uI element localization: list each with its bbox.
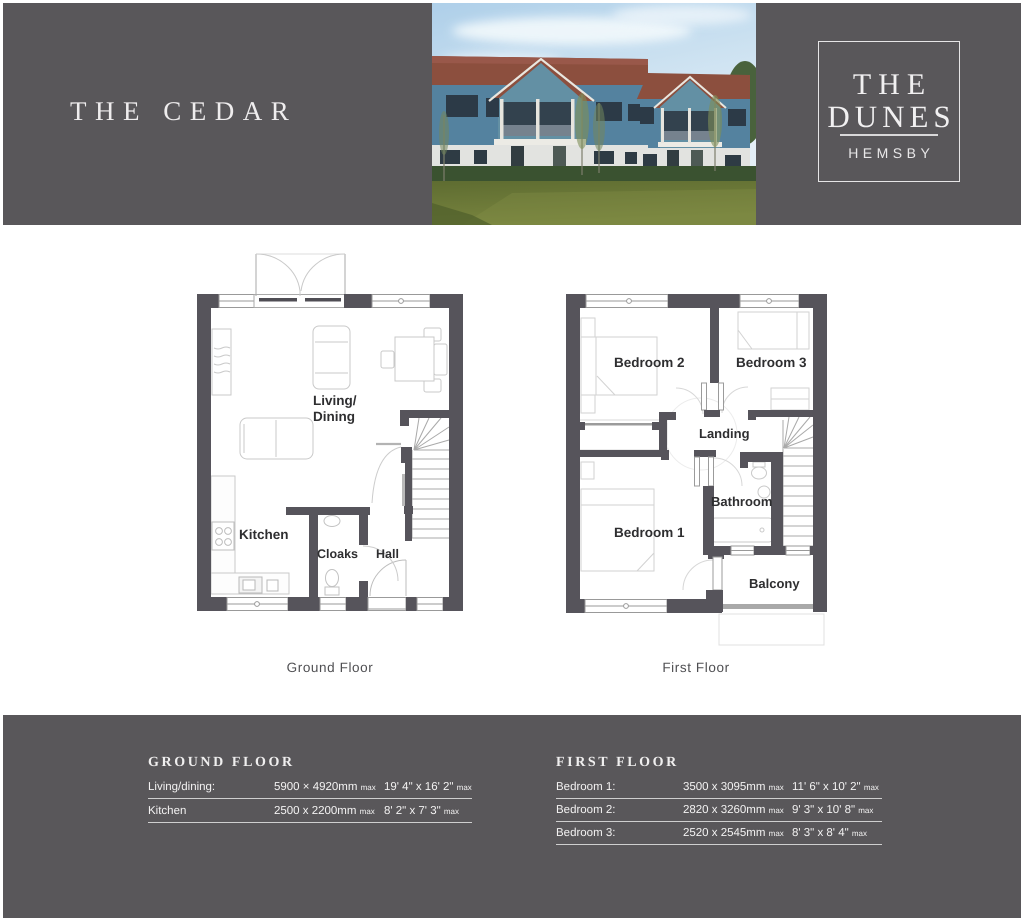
svg-text:Bathroom: Bathroom [711, 494, 772, 509]
svg-text:Bedroom 2: Bedroom 2 [614, 355, 685, 370]
svg-text:Dining: Dining [313, 409, 355, 424]
svg-text:Cloaks: Cloaks [317, 547, 358, 561]
svg-text:Living/: Living/ [313, 393, 357, 408]
svg-text:Bedroom 1: Bedroom 1 [614, 525, 685, 540]
svg-text:Kitchen: Kitchen [239, 527, 289, 542]
svg-text:Ground Floor: Ground Floor [287, 660, 374, 675]
svg-text:Bedroom 3: Bedroom 3 [736, 355, 807, 370]
svg-text:Landing: Landing [699, 426, 750, 441]
svg-text:First Floor: First Floor [662, 660, 729, 675]
svg-text:Hall: Hall [376, 547, 399, 561]
svg-text:Balcony: Balcony [749, 576, 800, 591]
